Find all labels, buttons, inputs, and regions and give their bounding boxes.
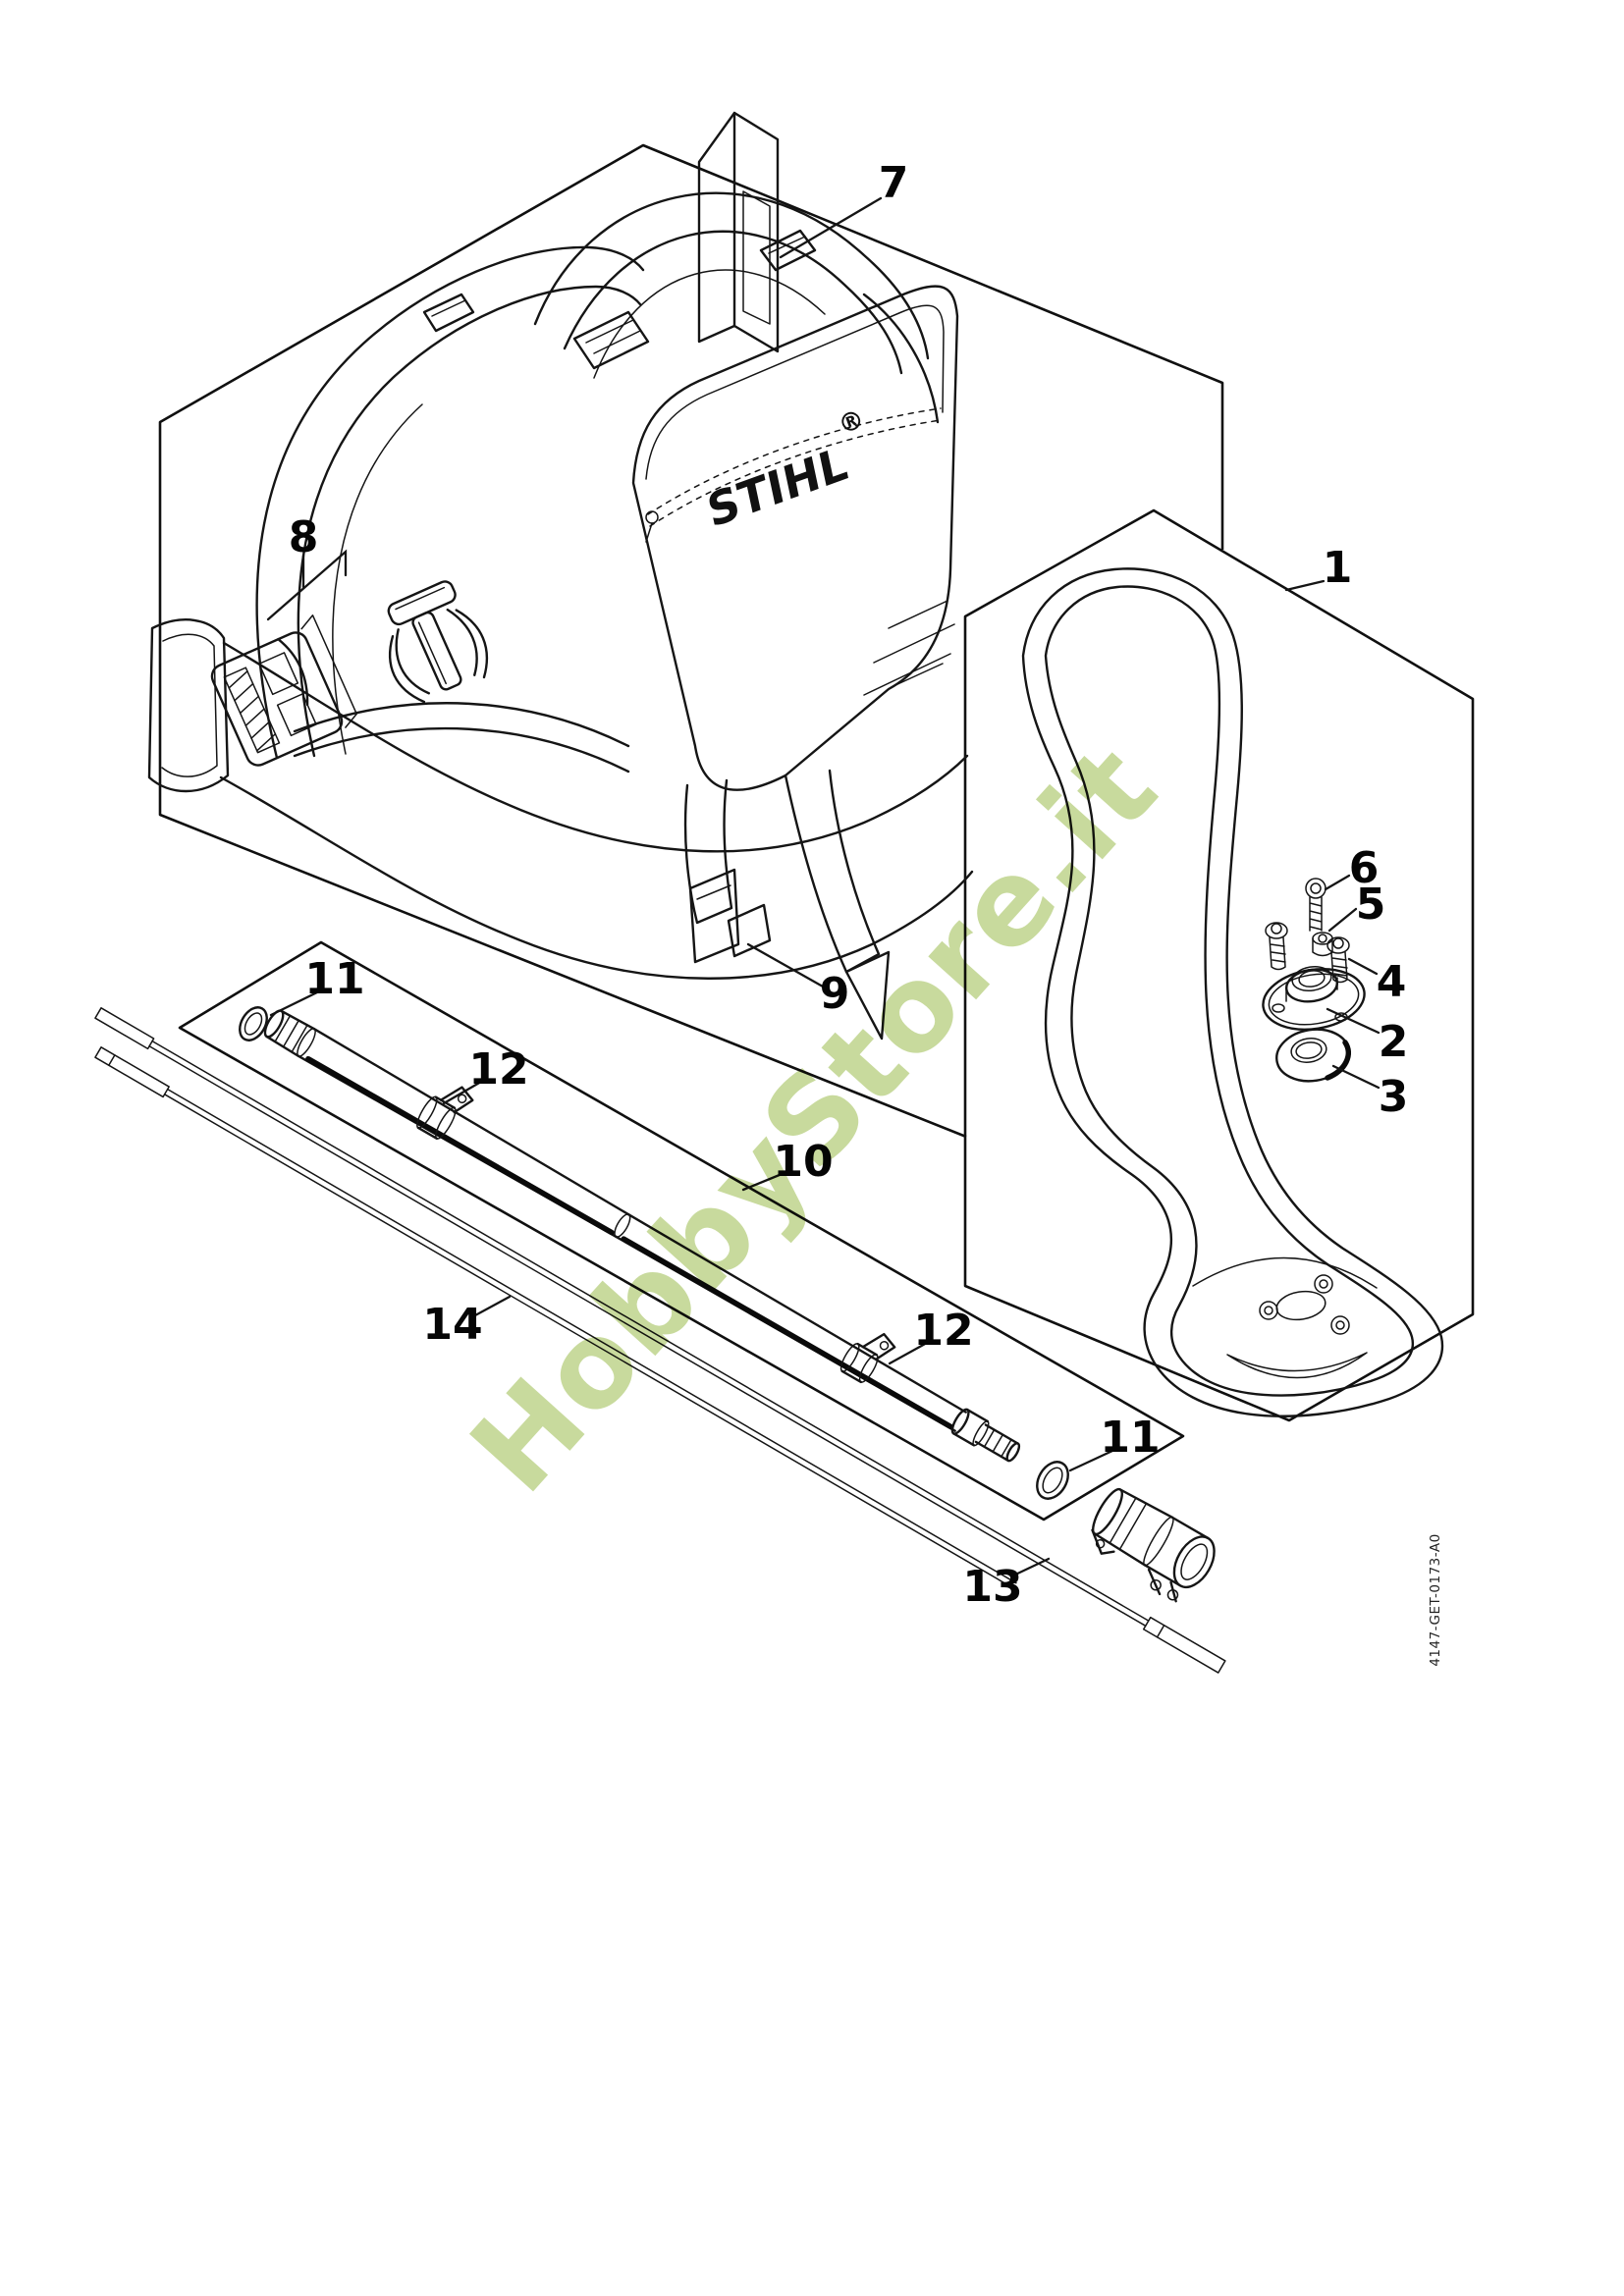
svg-text:1: 1	[1323, 543, 1353, 593]
svg-text:14: 14	[422, 1300, 482, 1350]
svg-text:3: 3	[1379, 1072, 1409, 1122]
svg-text:11: 11	[1100, 1413, 1160, 1463]
callout-3: 3	[1333, 1066, 1408, 1122]
svg-text:4: 4	[1377, 957, 1407, 1007]
callout-12-lower: 12	[890, 1306, 974, 1363]
svg-text:10: 10	[773, 1137, 833, 1187]
callout-13: 13	[962, 1559, 1049, 1612]
svg-text:11: 11	[304, 954, 364, 1004]
backpack-harness-illustration	[149, 113, 972, 1039]
callout-1: 1	[1286, 543, 1352, 593]
svg-text:13: 13	[962, 1562, 1022, 1612]
svg-text:12: 12	[468, 1044, 528, 1095]
callouts: 1 2 3 4 5 6 7 8	[268, 158, 1408, 1612]
svg-text:9: 9	[820, 969, 850, 1019]
callout-10: 10	[743, 1137, 834, 1190]
registered-mark: ®	[835, 404, 869, 441]
callout-11-lower: 11	[1070, 1413, 1161, 1470]
catalog-page: STIHL ® 1 2 3 4 5 6 7	[0, 0, 1624, 2296]
parts-diagram-canvas: STIHL ® 1 2 3 4 5 6 7	[0, 0, 1624, 2296]
svg-text:6: 6	[1349, 843, 1380, 893]
callout-2: 2	[1327, 1009, 1408, 1067]
document-code: 4147-GET-0173-A0	[1428, 1533, 1443, 1666]
callout-7: 7	[781, 158, 908, 257]
svg-text:12: 12	[913, 1306, 973, 1356]
svg-text:7: 7	[879, 158, 909, 208]
shaft-illustration	[94, 987, 1224, 1673]
callout-14: 14	[422, 1297, 510, 1350]
svg-text:2: 2	[1379, 1017, 1409, 1067]
hardware-illustration	[1259, 879, 1369, 1086]
svg-text:8: 8	[289, 512, 319, 562]
callout-9: 9	[748, 944, 849, 1019]
callout-12-upper: 12	[444, 1044, 529, 1103]
shaft-box-outline	[180, 942, 1183, 1520]
callout-6: 6	[1326, 843, 1379, 893]
